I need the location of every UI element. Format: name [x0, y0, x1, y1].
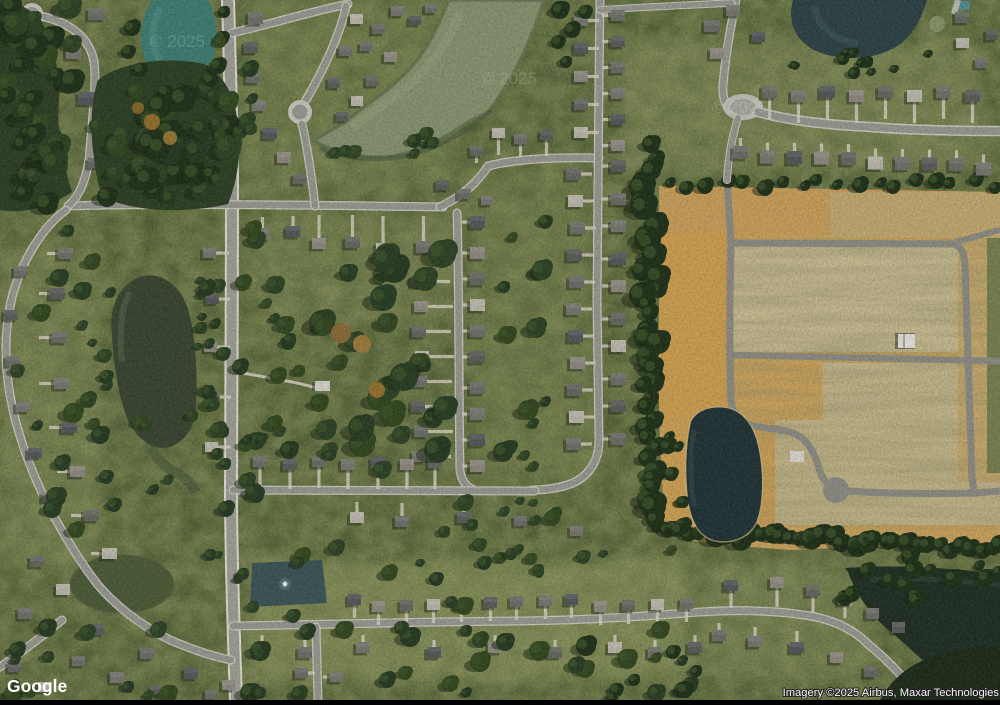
svg-text:© 2025: © 2025: [150, 32, 205, 51]
svg-text:© 2025: © 2025: [712, 98, 767, 117]
svg-text:Imagery ©2025 Airbus, Maxar Te: Imagery ©2025 Airbus, Maxar Technologies: [783, 687, 1000, 699]
svg-text:Google: Google: [7, 676, 68, 696]
svg-text:© 2025: © 2025: [482, 69, 537, 88]
